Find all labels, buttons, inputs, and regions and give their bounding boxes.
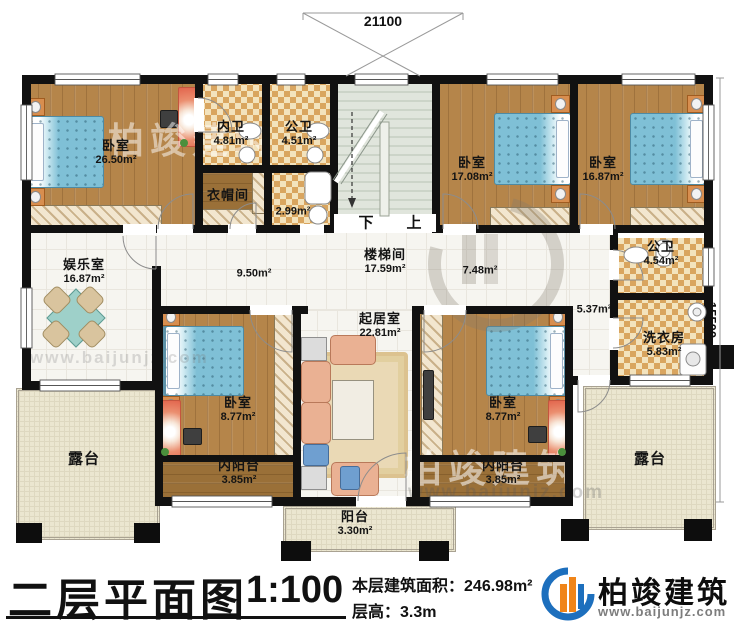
stool bbox=[160, 110, 178, 128]
nightstand bbox=[26, 98, 45, 116]
room-label-terrace-left: 露台 bbox=[68, 450, 100, 467]
bed-bedroom-5 bbox=[486, 326, 568, 396]
room-name: 内卫 bbox=[214, 120, 249, 135]
room-label-public-bath-right: 公卫4.54m² bbox=[644, 240, 679, 268]
floor-stairwell bbox=[334, 79, 436, 232]
room-name: 公卫 bbox=[644, 240, 679, 255]
nightstand bbox=[687, 185, 706, 203]
room-label-bedroom-2: 卧室17.08m² bbox=[452, 156, 493, 184]
room-name: 起居室 bbox=[359, 312, 401, 327]
stair-up-label: 上 bbox=[406, 212, 421, 233]
room-area: 7.48m² bbox=[463, 265, 498, 278]
cushion bbox=[340, 466, 360, 490]
room-name: 内阳台 bbox=[482, 459, 524, 474]
dresser-mat bbox=[548, 400, 570, 458]
room-area: 16.87m² bbox=[583, 171, 624, 184]
nightstand bbox=[687, 95, 706, 113]
room-name: 卧室 bbox=[452, 156, 493, 171]
bed-bedroom-3 bbox=[630, 113, 708, 185]
room-label-entertainment: 娱乐室16.87m² bbox=[63, 258, 105, 286]
bed-bedroom-2 bbox=[494, 113, 574, 185]
room-label-bedroom-4: 卧室8.77m² bbox=[221, 396, 256, 424]
dresser-mat bbox=[178, 87, 200, 147]
room-area: 22.81m² bbox=[359, 327, 401, 340]
room-name: 阳台 bbox=[338, 510, 373, 525]
room-name: 公卫 bbox=[282, 120, 317, 135]
room-label-laundry: 洗衣房5.83m² bbox=[643, 331, 685, 359]
room-label-hall-left: 9.50m² bbox=[237, 268, 272, 281]
tv-bedroom-5 bbox=[528, 426, 547, 443]
room-label-bedroom-5: 卧室8.77m² bbox=[486, 396, 521, 424]
room-name: 卧室 bbox=[96, 139, 137, 154]
wardrobe-master bbox=[28, 205, 162, 228]
room-label-terrace-right: 露台 bbox=[634, 450, 666, 467]
room-name: 洗衣房 bbox=[643, 331, 685, 346]
end-table bbox=[301, 337, 327, 361]
room-label-bedroom-3: 卧室16.87m² bbox=[583, 156, 624, 184]
tv-living bbox=[423, 370, 434, 420]
room-area: 17.59m² bbox=[364, 263, 406, 276]
room-label-public-bath-top: 公卫4.51m² bbox=[282, 120, 317, 148]
room-label-inner-balcony-right: 内阳台3.85m² bbox=[482, 459, 524, 487]
room-name: 内阳台 bbox=[218, 459, 260, 474]
room-label-shower-room: 2.99m² bbox=[276, 206, 311, 219]
wardrobe-bedroom-2 bbox=[490, 207, 570, 229]
brand-logo-icon bbox=[540, 566, 596, 624]
room-area: 8.77m² bbox=[221, 411, 256, 424]
room-label-master-bedroom: 卧室26.50m² bbox=[96, 139, 137, 167]
room-name: 卧室 bbox=[221, 396, 256, 411]
floor-area-value: 246.98m² bbox=[464, 578, 533, 595]
dim-right: 15500 bbox=[704, 302, 719, 338]
room-name: 衣帽间 bbox=[207, 189, 249, 204]
room-label-balcony: 阳台3.30m² bbox=[338, 510, 373, 538]
room-label-corridor: 5.37m² bbox=[577, 304, 612, 317]
room-name: 卧室 bbox=[486, 396, 521, 411]
room-label-living-room: 起居室22.81m² bbox=[359, 312, 401, 340]
nightstand bbox=[162, 308, 180, 326]
room-area: 5.37m² bbox=[577, 304, 612, 317]
wardrobe-bedroom-4 bbox=[274, 314, 295, 456]
nightstand bbox=[549, 308, 567, 326]
floor-area-line: 本层建筑面积：246.98m² bbox=[352, 572, 533, 596]
room-label-stairwell: 楼梯间17.59m² bbox=[364, 248, 406, 276]
room-area: 5.83m² bbox=[643, 346, 685, 359]
room-area: 8.77m² bbox=[486, 411, 521, 424]
room-name: 娱乐室 bbox=[63, 258, 105, 273]
floor-plan-page: 柏竣建筑 柏竣建筑 www.baijunjz.com www.baijunjz.… bbox=[0, 0, 750, 631]
room-area: 3.85m² bbox=[482, 474, 524, 487]
dresser-mat bbox=[159, 400, 181, 458]
room-area: 4.54m² bbox=[644, 255, 679, 268]
wardrobe-bedroom-3 bbox=[630, 207, 708, 229]
bed-bedroom-4 bbox=[162, 326, 244, 396]
room-area: 17.08m² bbox=[452, 171, 493, 184]
room-name: 露台 bbox=[68, 450, 100, 467]
room-area: 3.30m² bbox=[338, 525, 373, 538]
room-area: 4.51m² bbox=[282, 135, 317, 148]
sofa-seat bbox=[301, 361, 331, 403]
nightstand bbox=[26, 188, 45, 206]
room-area: 9.50m² bbox=[237, 268, 272, 281]
brand-website: www.baijunjz.com bbox=[598, 604, 726, 619]
room-area: 26.50m² bbox=[96, 154, 137, 167]
nightstand bbox=[551, 95, 570, 113]
bed-master bbox=[26, 116, 104, 188]
title-underline bbox=[6, 616, 346, 619]
room-name: 露台 bbox=[634, 450, 666, 467]
cushion bbox=[303, 444, 329, 466]
floor-area-label: 本层建筑面积： bbox=[352, 578, 464, 595]
room-label-inner-balcony-left: 内阳台3.85m² bbox=[218, 459, 260, 487]
room-label-cloakroom: 衣帽间 bbox=[207, 189, 249, 204]
room-name: 卧室 bbox=[583, 156, 624, 171]
room-label-hall-right: 7.48m² bbox=[463, 265, 498, 278]
plan-scale: 1:100 bbox=[246, 569, 343, 612]
room-area: 2.99m² bbox=[276, 206, 311, 219]
floor-height-value: 3.3m bbox=[400, 604, 436, 621]
sofa-seat bbox=[301, 402, 331, 444]
stair-down-label: 下 bbox=[358, 212, 373, 233]
floor-shower-room bbox=[268, 169, 334, 229]
floor-height-label: 层高： bbox=[352, 604, 400, 621]
end-table bbox=[301, 466, 327, 490]
coffee-table bbox=[332, 380, 374, 440]
room-label-inner-bath: 内卫4.81m² bbox=[214, 120, 249, 148]
tv-bedroom-4 bbox=[183, 428, 202, 445]
floor-height-line: 层高：3.3m bbox=[352, 598, 436, 622]
nightstand bbox=[551, 185, 570, 203]
room-area: 3.85m² bbox=[218, 474, 260, 487]
room-area: 4.81m² bbox=[214, 135, 249, 148]
room-area: 16.87m² bbox=[63, 273, 105, 286]
shelf-cloakroom bbox=[252, 172, 268, 214]
room-name: 楼梯间 bbox=[364, 248, 406, 263]
dim-top: 21100 bbox=[364, 13, 402, 29]
